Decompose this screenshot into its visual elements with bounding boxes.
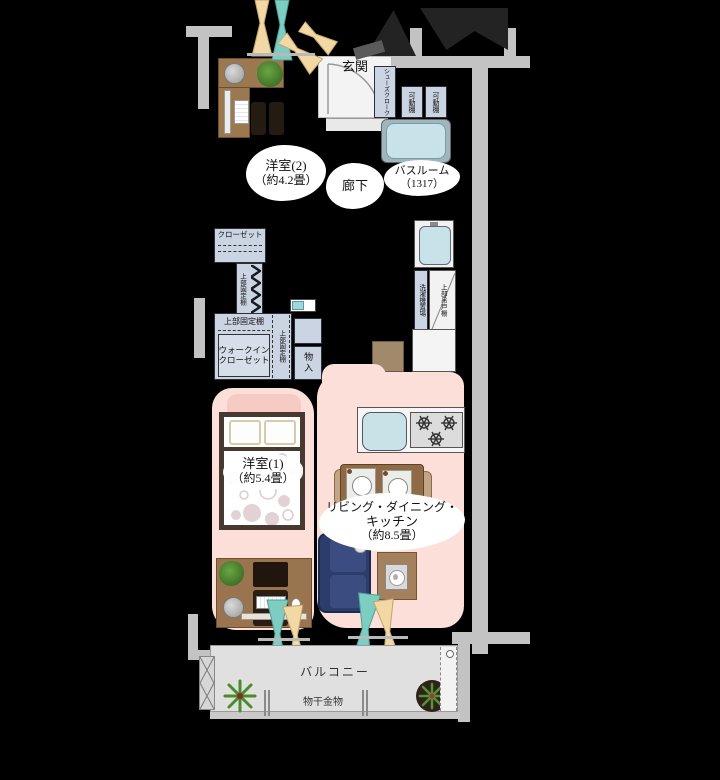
washer-label-box: 洗濯機置場 (414, 270, 428, 330)
laundry-support (366, 690, 368, 716)
wall-segment (186, 26, 232, 37)
upper-fixed-shelf-label: 上部固定棚 (277, 330, 284, 363)
laundry-support (362, 690, 364, 716)
shoes-cloak-label: シューズクローク (382, 68, 389, 116)
storage-label: 物入 (303, 352, 313, 374)
keyboard-icon (234, 100, 249, 124)
wic-label: クローゼット (219, 356, 270, 366)
cup-icon (393, 574, 398, 580)
window-line (348, 636, 408, 639)
cup-icon (347, 469, 352, 474)
wall-segment (198, 37, 209, 109)
window-line (247, 53, 315, 56)
hanger-zigzag-icon (251, 265, 261, 313)
washer-space-label: 洗濯機置場 (417, 284, 424, 317)
pillow-icon (264, 420, 296, 445)
shelf-line (218, 330, 270, 331)
wall-segment (452, 632, 530, 644)
refrigerator-space (412, 329, 456, 372)
window-line (258, 638, 310, 641)
stairwell-void (420, 8, 508, 50)
shoes-cloak-box: シューズクローク (374, 66, 396, 118)
bathroom-label: バスルーム （1317） (384, 160, 460, 196)
kitchen-sink (362, 412, 407, 451)
closet-label: クローゼット (218, 231, 263, 240)
movable-shelf-label: 可動棚 (432, 92, 440, 113)
balcony-label: バルコニー (280, 666, 390, 680)
desk-chair (251, 102, 266, 135)
movable-shelf-label: 可動棚 (408, 92, 416, 113)
western-room-2-label: 洋室(2) （約4.2畳） (246, 145, 326, 201)
hanger-shelf-box: 上部固定棚 (236, 263, 263, 315)
wall-segment (472, 56, 488, 654)
laundry-hardware-label: 物干金物 (288, 697, 358, 709)
wall-segment (194, 298, 205, 358)
vanity-basin (419, 226, 451, 265)
hatch-x-icon (200, 657, 214, 709)
genkan-step (326, 118, 388, 131)
monitor-icon (224, 90, 231, 134)
western-room-1-label: 洋室(1) （約5.4畳） (223, 453, 303, 490)
laundry-support (264, 690, 266, 716)
plant-icon (222, 678, 258, 714)
storage-box: 物入 (294, 346, 322, 380)
cup-icon (383, 471, 388, 476)
wic-box: ウォークイン クローゼット (218, 334, 270, 377)
hanging-cupboard-box: 上部吊戸棚 (429, 270, 456, 330)
wic-side-shelf: 上部固定棚 (272, 315, 290, 378)
movable-shelf-box: 可動棚 (401, 86, 423, 118)
storage-box (294, 318, 322, 344)
upper-fixed-shelf-label: 上部固定棚 (218, 317, 270, 326)
desk-chair (269, 102, 284, 135)
wall-segment (458, 644, 470, 722)
shelf-line (218, 245, 262, 246)
movable-shelf-box: 可動棚 (425, 86, 447, 118)
plate-icon (352, 476, 372, 496)
closet-box: クローゼット (214, 228, 266, 263)
plant-icon (257, 61, 283, 87)
hallway-label: 廊下 (326, 163, 384, 209)
faucet-icon (430, 222, 438, 226)
shelf-line (218, 251, 262, 252)
balcony-hatch (199, 656, 215, 710)
partition-hook (446, 650, 454, 658)
floor-plan: 玄関 シューズクローク 可動棚 可動棚 バスルーム （1317） 洋室(2) （… (0, 0, 720, 780)
wall-segment (388, 56, 530, 68)
counter-shelf-top (292, 301, 304, 310)
monitor-icon (253, 562, 288, 587)
pillow-icon (229, 420, 261, 445)
hanging-cupboard-label: 上部吊戸棚 (439, 284, 446, 317)
laundry-support (268, 690, 270, 716)
upper-fixed-shelf-label: 上部固定棚 (238, 273, 245, 306)
bathtub-inner (386, 123, 446, 159)
lamp-icon (224, 63, 245, 84)
stove-burner-icon (410, 412, 463, 448)
